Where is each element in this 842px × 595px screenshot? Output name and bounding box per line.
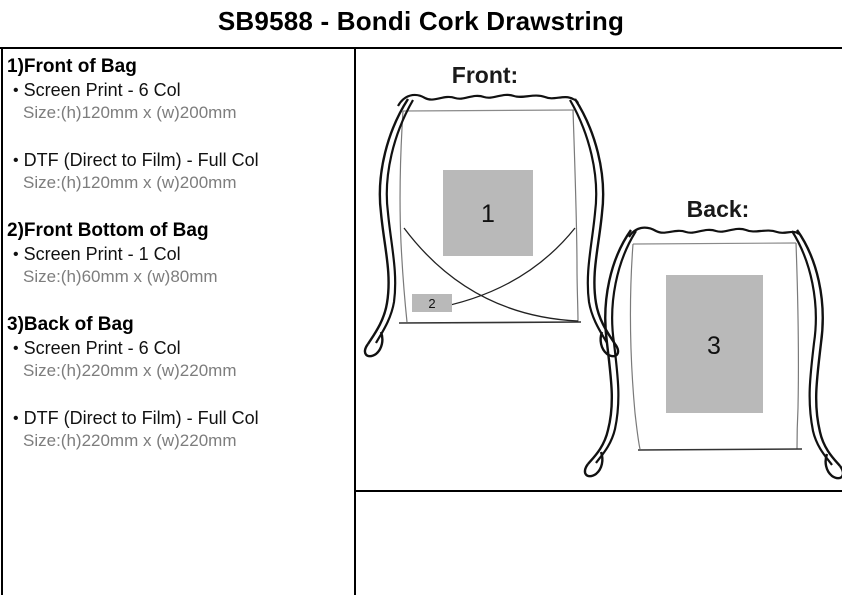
front-bag-top-seam	[403, 110, 574, 111]
diagram-panel: Front: Back:	[355, 48, 842, 595]
print-area-3-number: 3	[707, 332, 721, 360]
print-spec-panel: 1)Front of Bag •Screen Print - 6 Col Siz…	[0, 48, 348, 595]
spec-item: •DTF (Direct to Film) - Full Col Size:(h…	[7, 407, 348, 452]
bullet-icon: •	[13, 79, 19, 102]
spec-item: •Screen Print - 6 Col Size:(h)220mm x (w…	[7, 337, 348, 382]
section-heading-front: 1)Front of Bag	[7, 55, 348, 78]
back-bag-right-edge	[796, 243, 798, 449]
print-method-label: Screen Print - 6 Col	[24, 80, 181, 100]
print-method-label: DTF (Direct to Film) - Full Col	[24, 150, 259, 170]
back-bag-drawing: 3	[585, 228, 842, 479]
bullet-icon: •	[13, 149, 19, 172]
page-title: SB9588 - Bondi Cork Drawstring	[0, 6, 842, 37]
spec-section-back: 3)Back of Bag •Screen Print - 6 Col Size…	[7, 313, 348, 452]
print-method-label: Screen Print - 1 Col	[24, 244, 181, 264]
spec-sheet: SB9588 - Bondi Cork Drawstring 1)Front o…	[0, 0, 842, 595]
back-bag-top-seam	[633, 243, 796, 244]
front-bag-left-edge	[400, 111, 407, 322]
section-heading-front-bottom: 2)Front Bottom of Bag	[7, 219, 348, 242]
back-bag-left-edge	[631, 244, 640, 449]
section-heading-back: 3)Back of Bag	[7, 313, 348, 336]
spec-item: •Screen Print - 6 Col Size:(h)120mm x (w…	[7, 79, 348, 124]
front-bag-drawing: 1 2	[365, 95, 618, 356]
print-size-label: Size:(h)60mm x (w)80mm	[7, 266, 348, 288]
print-size-label: Size:(h)120mm x (w)200mm	[7, 102, 348, 124]
print-size-label: Size:(h)120mm x (w)200mm	[7, 172, 348, 194]
print-size-label: Size:(h)220mm x (w)220mm	[7, 430, 348, 452]
front-bag-right-edge	[573, 110, 578, 322]
back-bag-bottom-edge	[638, 449, 802, 450]
print-method-label: DTF (Direct to Film) - Full Col	[24, 408, 259, 428]
bullet-icon: •	[13, 337, 19, 360]
print-method-label: Screen Print - 6 Col	[24, 338, 181, 358]
spec-item: •DTF (Direct to Film) - Full Col Size:(h…	[7, 149, 348, 194]
print-size-label: Size:(h)220mm x (w)220mm	[7, 360, 348, 382]
spec-section-front-bottom: 2)Front Bottom of Bag •Screen Print - 1 …	[7, 219, 348, 288]
spec-section-front: 1)Front of Bag •Screen Print - 6 Col Siz…	[7, 55, 348, 194]
print-area-1-number: 1	[481, 200, 495, 228]
back-bag-right-strap	[797, 230, 840, 466]
back-bag-wavy-top	[629, 228, 799, 237]
bag-diagram: 1 2 3	[355, 48, 842, 595]
bullet-icon: •	[13, 407, 19, 430]
spec-item: •Screen Print - 1 Col Size:(h)60mm x (w)…	[7, 243, 348, 288]
front-bag-wavy-top	[398, 95, 578, 106]
bullet-icon: •	[13, 243, 19, 266]
front-bag-bottom-edge	[399, 322, 581, 323]
print-area-2-number: 2	[428, 296, 435, 311]
